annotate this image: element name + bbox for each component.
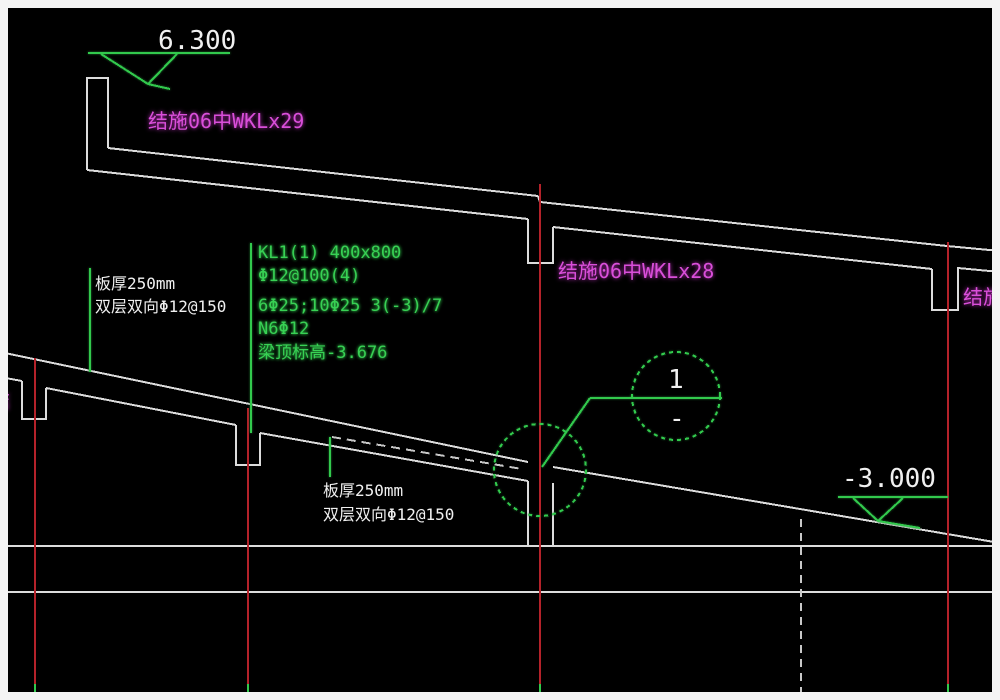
beam-note-stirrups: Φ12@100(4) [258,266,360,286]
elevation-value-bottom: -3.000 [842,464,936,494]
beam-note-name-size: KL1(1) 400x800 [258,243,401,263]
elevation-value-top: 6.300 [158,26,236,56]
beam-note-side-bars: N6Φ12 [258,319,309,339]
drawing-ref-wklx28: 结施06中WKLx28 [558,259,714,283]
slab-note-left-thickness: 板厚250mm [95,274,175,293]
section-number: 1 [668,365,684,395]
slab-note-bottom-rebar: 双层双向Φ12@150 [323,505,454,524]
section-sheet: - [669,404,685,434]
slab-note-left-rebar: 双层双向Φ12@150 [95,297,226,316]
beam-note-main-bars: 6Φ25;10Φ25 3(-3)/7 [258,296,442,316]
cad-viewport[interactable]: 6.300 -3.000 结施06中WKLx29 结施06中WKLx28 结施0… [0,0,1000,700]
slab-note-bottom-thickness: 板厚250mm [323,481,403,500]
drawing-canvas[interactable] [0,0,1000,700]
beam-note-top-elevation: 梁顶标高-3.676 [258,343,387,363]
drawing-ref-wklx29: 结施06中WKLx29 [148,109,304,133]
